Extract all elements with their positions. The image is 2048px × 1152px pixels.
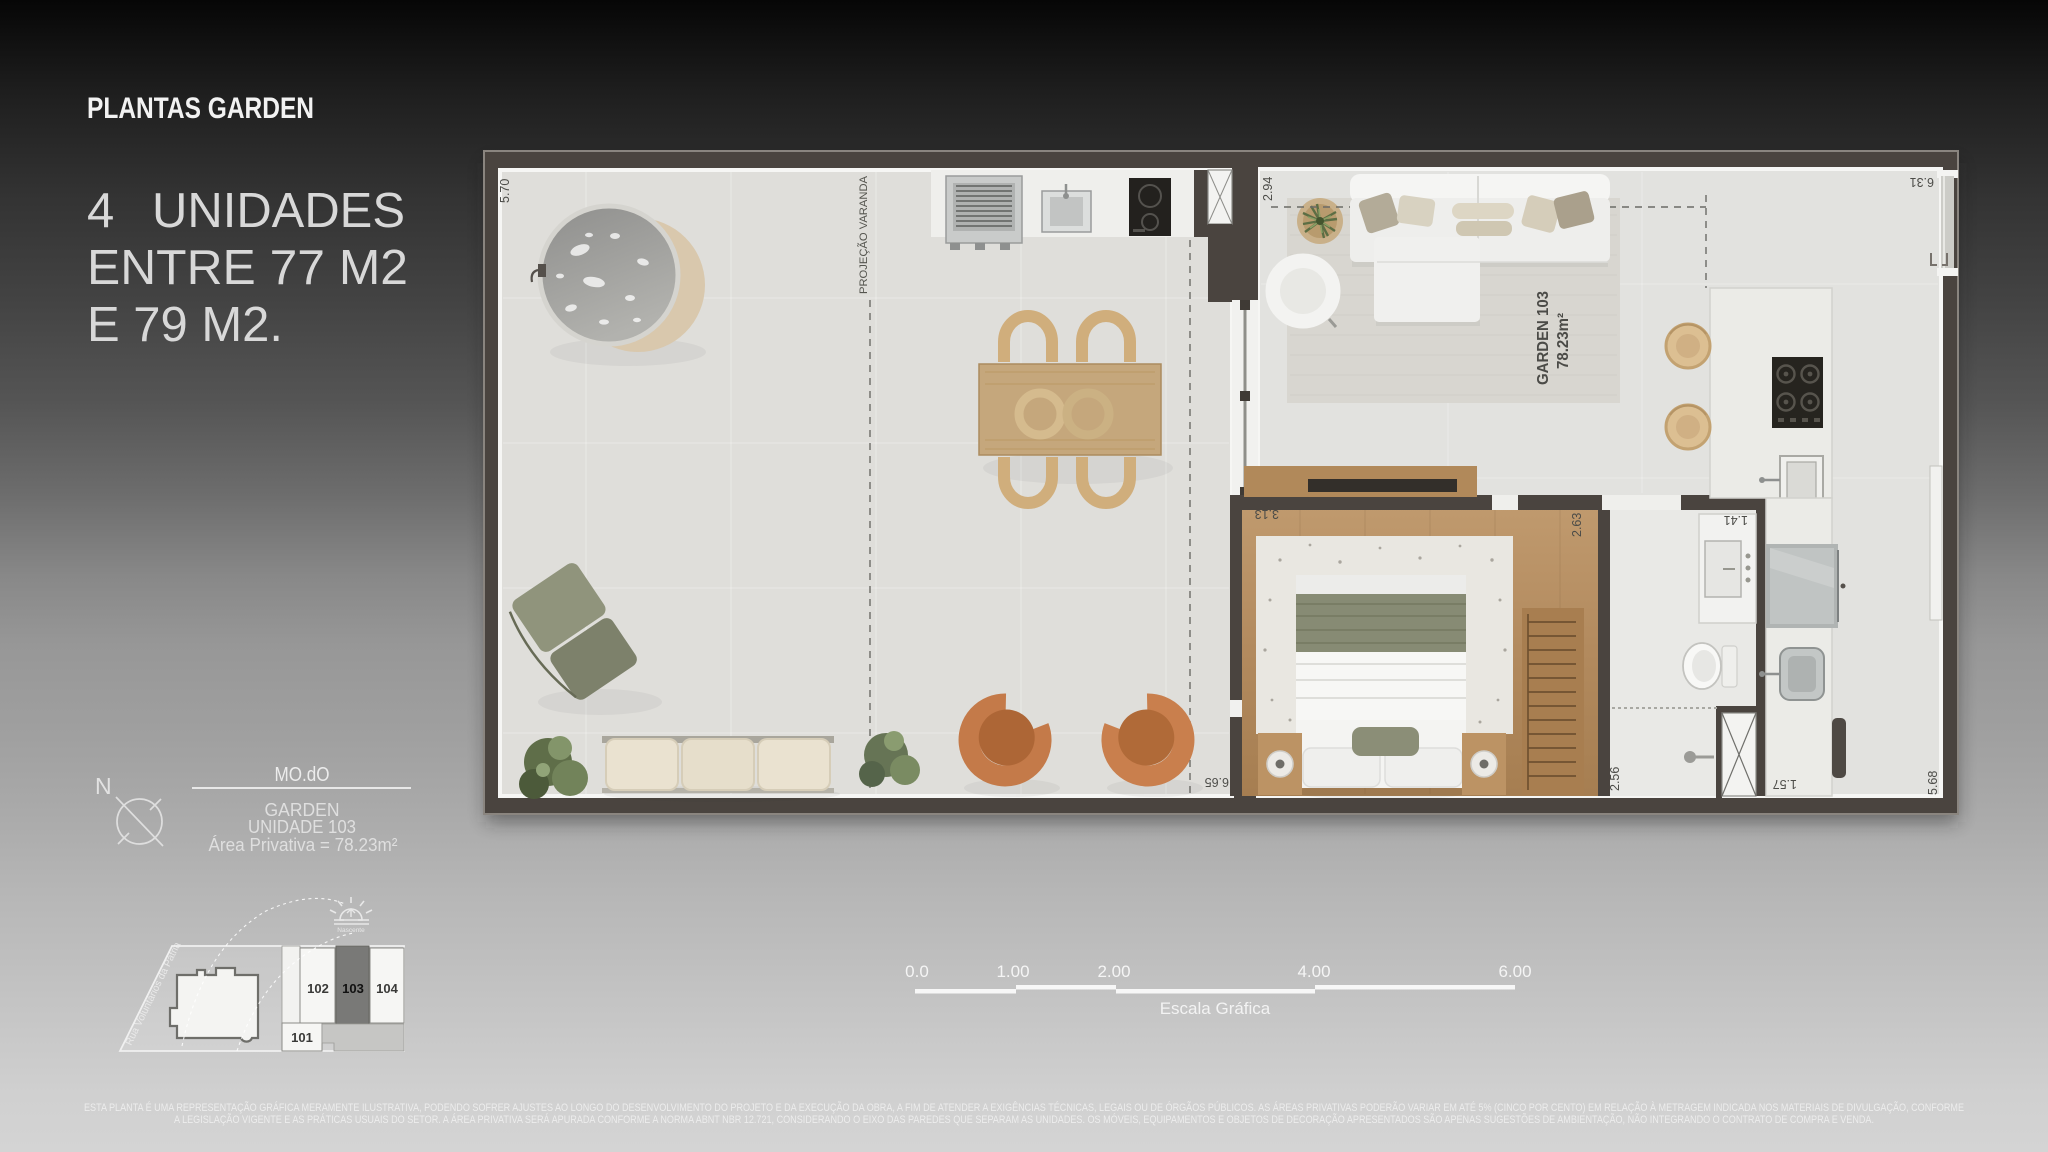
svg-text:6.65: 6.65 [1205, 775, 1229, 789]
svg-text:1.57: 1.57 [1773, 777, 1797, 791]
svg-text:A LEGISLAÇÃO VIGENTE E AS PRÁT: A LEGISLAÇÃO VIGENTE E AS PRÁTICAS USUAI… [174, 1113, 1874, 1126]
svg-text:104: 104 [376, 981, 398, 996]
svg-text:Área Privativa = 78.23m²: Área Privativa = 78.23m² [209, 834, 398, 855]
svg-text:N: N [95, 773, 112, 799]
svg-text:1.00: 1.00 [996, 962, 1029, 981]
svg-text:2.63: 2.63 [1570, 513, 1584, 537]
svg-text:PROJEÇÃO VARANDA: PROJEÇÃO VARANDA [857, 175, 870, 294]
svg-text:101: 101 [291, 1030, 313, 1045]
svg-text:102: 102 [307, 981, 329, 996]
svg-text:2.56: 2.56 [1608, 767, 1622, 791]
svg-text:103: 103 [342, 981, 364, 996]
svg-text:E 79 M2.: E 79 M2. [87, 298, 283, 352]
svg-text:78.23m²: 78.23m² [1555, 313, 1572, 369]
svg-text:3.13: 3.13 [1255, 507, 1279, 521]
svg-text:5.70: 5.70 [498, 179, 512, 203]
svg-text:0.0: 0.0 [905, 962, 929, 981]
svg-text:6.00: 6.00 [1498, 962, 1531, 981]
svg-text:ENTRE 77 M2: ENTRE 77 M2 [87, 241, 408, 295]
svg-text:4.00: 4.00 [1297, 962, 1330, 981]
svg-text:MO.dO: MO.dO [275, 764, 330, 786]
svg-text:UNIDADES: UNIDADES [152, 184, 405, 238]
svg-text:ESTA PLANTA É UMA REPRESENTAÇÃ: ESTA PLANTA É UMA REPRESENTAÇÃO GRÁFICA … [84, 1101, 1964, 1114]
svg-text:5.68: 5.68 [1926, 771, 1940, 795]
svg-text:6.31: 6.31 [1910, 175, 1934, 189]
svg-text:Escala Gráfica: Escala Gráfica [1160, 999, 1271, 1018]
svg-text:2.00: 2.00 [1097, 962, 1130, 981]
svg-text:1.41: 1.41 [1724, 513, 1748, 527]
svg-text:GARDEN 103: GARDEN 103 [1535, 291, 1552, 385]
svg-text:4: 4 [87, 184, 114, 238]
svg-text:Nascente: Nascente [337, 927, 365, 934]
svg-text:PLANTAS GARDEN: PLANTAS GARDEN [87, 92, 314, 125]
svg-text:2.94: 2.94 [1261, 177, 1275, 201]
